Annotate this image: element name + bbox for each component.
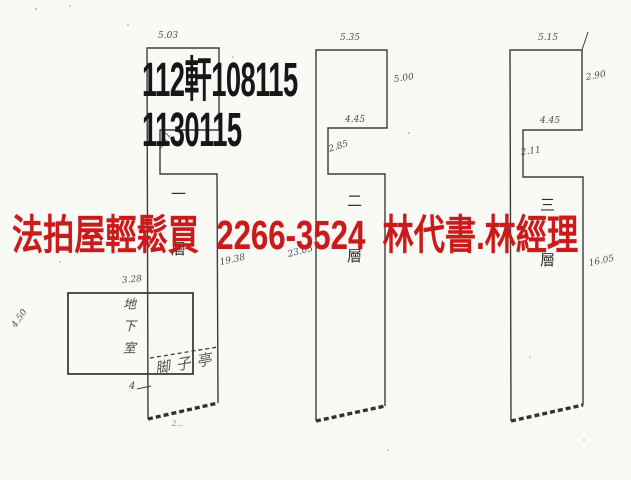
dim-label-top-basement: 3.28 (122, 274, 143, 286)
first-floor-bottom-hatch (148, 403, 218, 419)
dim-label-notchw-2f: 4.45 (345, 115, 365, 125)
basement-label: 地下室 (121, 297, 134, 363)
dim-label-bottom-1f: 2... (172, 420, 183, 428)
third-floor-bottom-hatch (511, 405, 583, 421)
second-floor-bottom-hatch (316, 406, 385, 421)
left-wall-tick (137, 386, 151, 389)
dim-label-top-2f: 5.35 (340, 33, 360, 43)
dim-label-top-3f: 5.15 (538, 33, 558, 43)
stray-mark (582, 32, 588, 50)
dim-label-tick-1f: 4 (129, 381, 135, 392)
case-number-line1: 112軒108115 (142, 56, 298, 106)
scanned-floorplan-page: 5.03 2.11 19.38 4 2... 5.35 5.00 4.45 2.… (0, 0, 631, 480)
dim-label-top-1f: 5.03 (158, 31, 178, 41)
case-number-stamp: 112軒108115 1130115 (142, 56, 298, 156)
ad-banner: 法拍屋輕鬆買 2266-3524 林代書.林經理 (12, 212, 578, 258)
case-number-line2: 1130115 (142, 106, 298, 156)
dim-label-notchw-3f: 4.45 (540, 116, 560, 126)
